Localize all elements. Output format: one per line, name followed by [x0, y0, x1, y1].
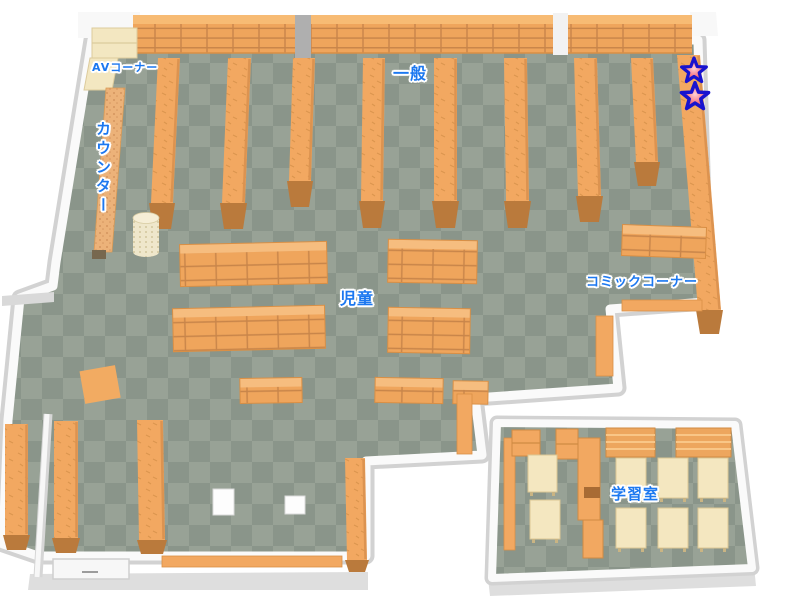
- bookshelf-texture: [434, 58, 457, 201]
- study-desk: [658, 508, 688, 548]
- bookshelf-end: [220, 203, 247, 229]
- bookshelf-end: [359, 201, 385, 228]
- bookshelf-end: [576, 196, 603, 222]
- bookshelf-end: [696, 310, 723, 334]
- divider-gap: [584, 487, 600, 498]
- low-bookshelf: [240, 377, 302, 403]
- bookshelf-end: [137, 540, 167, 554]
- counter-end: [92, 250, 106, 259]
- study-desk: [530, 500, 560, 539]
- area-label-children: 児童: [340, 285, 374, 309]
- library-floor-map: AVコーナー カウンター 一般 児童 コミックコーナー 学習室: [0, 0, 800, 600]
- bookshelf-texture: [5, 424, 28, 535]
- map-shape: [700, 498, 703, 502]
- low-bookshelf: [375, 377, 443, 403]
- wall-bookshelf-top: [568, 15, 692, 24]
- map-shape: [532, 539, 535, 543]
- map-shape: [700, 548, 703, 552]
- bookshelf-end: [634, 162, 660, 186]
- floor-map-root: [2, 12, 756, 596]
- low-bookshelf: [621, 225, 706, 259]
- map-shape: [240, 385, 302, 403]
- map-shape: [683, 498, 686, 502]
- map-shape: [683, 548, 686, 552]
- study-desk: [698, 458, 728, 498]
- map-shape: [660, 548, 663, 552]
- wall-bookshelf-top: [133, 15, 295, 24]
- map-shape: [552, 492, 555, 496]
- floor-map-canvas: [0, 0, 800, 600]
- display-cylinder-top: [133, 213, 159, 224]
- map-shape: [555, 539, 558, 543]
- low-bookshelf: [180, 241, 328, 286]
- bookshelf-end: [432, 201, 459, 228]
- bookshelf-end: [3, 535, 30, 550]
- map-shape: [180, 249, 328, 286]
- bookshelf-end: [287, 181, 313, 207]
- display-cylinder: [133, 247, 159, 257]
- bookshelf-end: [504, 201, 531, 228]
- low-bookshelf: [388, 307, 471, 353]
- study-desk: [616, 508, 646, 548]
- map-shape: [388, 247, 478, 284]
- wall-strip-shelf: [622, 300, 702, 311]
- play-mat: [79, 365, 120, 404]
- bookshelf-end: [52, 538, 80, 553]
- study-desk: [698, 508, 728, 548]
- low-bookshelf: [388, 239, 478, 284]
- map-shape: [723, 548, 726, 552]
- map-shape: [388, 315, 471, 353]
- wall-strip-shelf: [457, 394, 472, 454]
- wall-gap: [553, 13, 568, 55]
- map-shape: [660, 498, 663, 502]
- bookshelf-texture: [54, 421, 78, 538]
- map-shape: [641, 548, 644, 552]
- map-shape: [240, 377, 302, 387]
- white-table: [285, 496, 305, 514]
- entrance-door: [53, 559, 129, 579]
- area-label-av-corner: AVコーナー: [92, 59, 158, 75]
- wall-bookshelf-top: [311, 15, 553, 24]
- area-label-study-room: 学習室: [611, 483, 659, 504]
- divider-shelf: [578, 438, 600, 520]
- white-table: [213, 489, 234, 515]
- map-shape: [375, 385, 443, 403]
- wall-strip-shelf: [162, 556, 342, 567]
- study-desk: [658, 458, 688, 498]
- map-shape: [530, 492, 533, 496]
- divider-shelf: [583, 520, 603, 558]
- map-shape: [723, 498, 726, 502]
- wall-bookshelf: [311, 23, 553, 53]
- map-shape: [621, 233, 706, 259]
- map-shape: [618, 548, 621, 552]
- area-label-counter: カウンター: [93, 121, 114, 216]
- wall-strip-shelf: [596, 316, 613, 376]
- area-label-comic-corner: コミックコーナー: [586, 271, 698, 290]
- wall-bookshelf: [568, 23, 692, 53]
- area-label-general: 一般: [393, 60, 427, 84]
- map-shape: [173, 313, 326, 351]
- map-shape: [453, 381, 488, 391]
- map-shape: [375, 377, 443, 387]
- wall-corner: [690, 12, 718, 36]
- study-desk: [528, 455, 557, 492]
- low-bookshelf: [173, 305, 326, 351]
- bookshelf-end: [345, 560, 369, 572]
- wall-bookshelf: [133, 23, 295, 53]
